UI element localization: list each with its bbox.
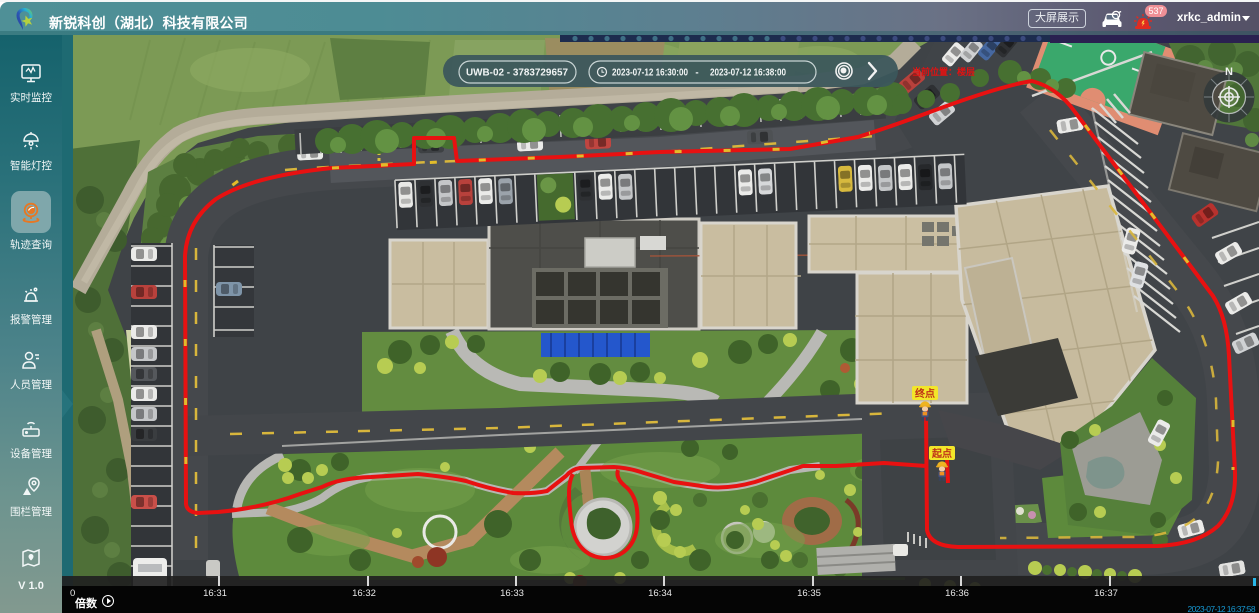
svg-text:终点: 终点 <box>915 387 935 400</box>
svg-text:起点: 起点 <box>931 447 952 460</box>
svg-text:2023-07-12 16:38:00: 2023-07-12 16:38:00 <box>710 68 786 79</box>
svg-text:N: N <box>1225 66 1233 78</box>
svg-text:UWB-02 - 3783729657: UWB-02 - 3783729657 <box>466 68 568 79</box>
svg-text:-: - <box>695 68 698 79</box>
svg-text:2023-07-12 16:30:00: 2023-07-12 16:30:00 <box>612 68 688 79</box>
svg-text:当前位置：楼层: 当前位置：楼层 <box>912 66 975 77</box>
